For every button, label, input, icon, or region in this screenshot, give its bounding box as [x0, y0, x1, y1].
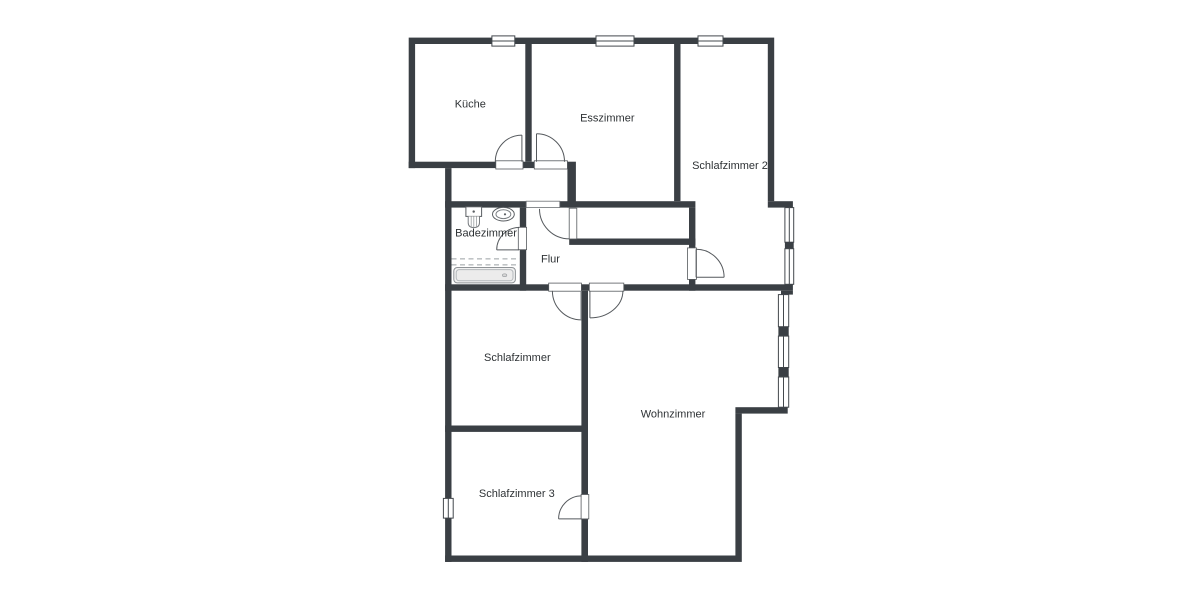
svg-text:Esszimmer: Esszimmer	[580, 113, 635, 125]
svg-text:Badezimmer: Badezimmer	[455, 228, 517, 240]
svg-text:Flur: Flur	[541, 253, 560, 265]
svg-text:Schlafzimmer 3: Schlafzimmer 3	[479, 488, 555, 500]
svg-text:Küche: Küche	[455, 98, 486, 110]
svg-text:Schlafzimmer: Schlafzimmer	[484, 352, 551, 364]
svg-text:Wohnzimmer: Wohnzimmer	[641, 408, 706, 420]
svg-text:Schlafzimmer 2: Schlafzimmer 2	[692, 160, 768, 172]
